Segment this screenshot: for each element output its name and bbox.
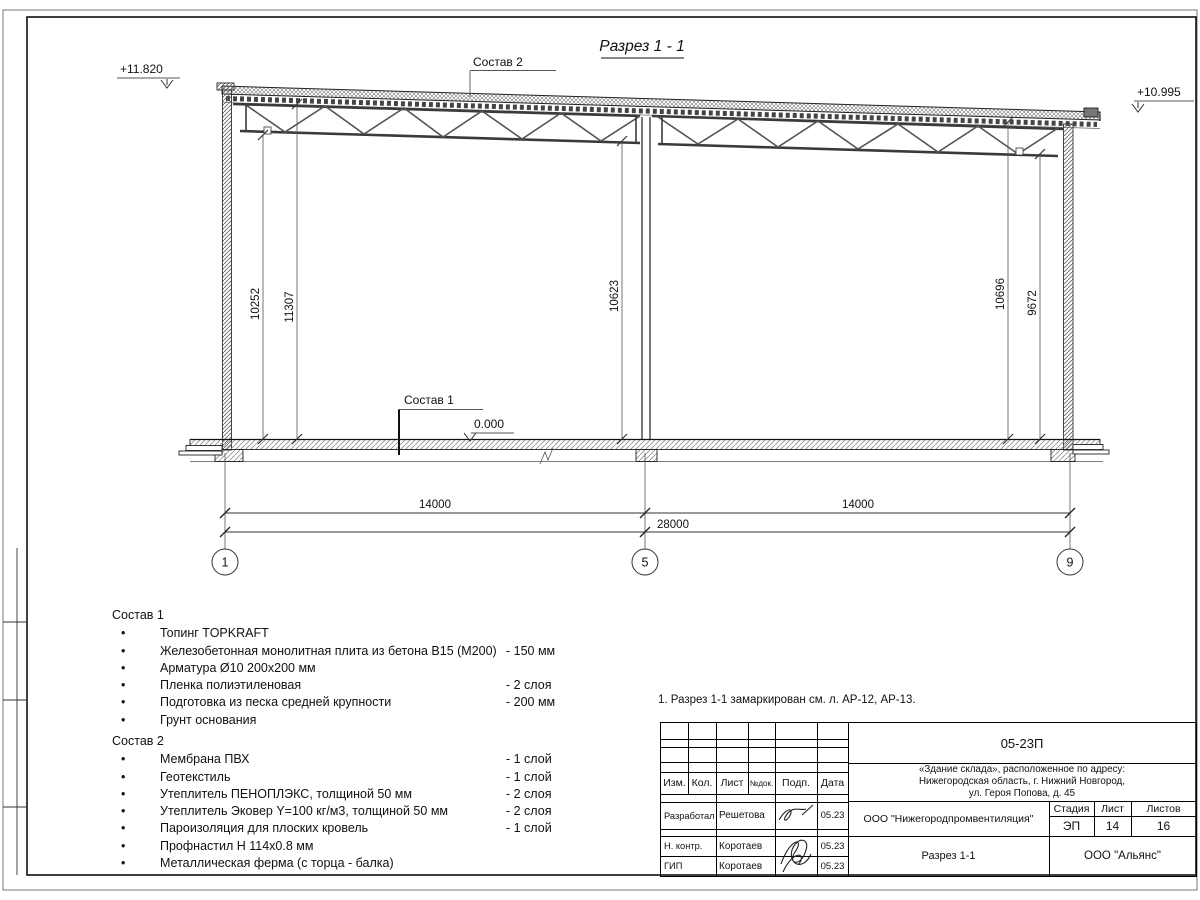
dim-9672: 9672 [1027,290,1039,316]
company-name: ООО "Альянс" [1049,836,1196,876]
svg-text:Состав 1: Состав 1 [404,393,454,407]
callout-roof: Состав 2 [470,55,556,97]
col-header-podp: Подп. [775,772,817,794]
material-row: •Грунт основания [112,712,570,729]
bullet-icon: • [121,694,131,711]
sostav2-heading: Состав 2 [112,733,570,750]
design-org: ООО "Нижегородпромвентиляция" [848,801,1049,836]
date-row2: 05.23 [817,836,848,856]
material-row: •Пароизоляция для плоских кровель- 1 сло… [112,820,570,837]
truss-right [652,116,1063,156]
sheet-value: 14 [1094,816,1131,836]
object-line3: ул. Героя Попова, д. 45 [919,788,1125,800]
dim-11307: 11307 [284,291,296,322]
column-center [642,117,650,439]
col-header-list: Лист [716,772,748,794]
role-nkontr: Н. контр. [661,836,716,856]
ramp-left [186,446,222,451]
sheet-label: Лист [1094,801,1131,816]
bullet-icon: • [121,751,131,768]
frame-side-boxes [3,548,27,875]
wall-left [217,83,234,450]
axis-9-label: 9 [1067,556,1074,570]
dim-span1: 14000 [419,499,451,511]
bullet-icon: • [121,786,131,803]
roof-edge-cap [1084,108,1098,117]
svg-text:+10.995: +10.995 [1137,85,1181,99]
dim-span2: 14000 [842,499,874,511]
elevation-mark-floor: 0.000 [464,417,514,441]
sostav2-block: Состав 2 •Мембрана ПВХ- 1 слой •Геотекст… [112,733,570,872]
bullet-icon: • [121,803,131,820]
col-header-izm: Изм. [661,772,688,794]
height-dimensions [258,99,1045,444]
role-razrabotal: Разработал [661,802,716,829]
drawing-title: Разрез 1 - 1 [599,38,684,55]
svg-text:+11.820: +11.820 [120,62,163,76]
material-row: •Арматура Ø10 200х200 мм [112,660,570,677]
dim-10252: 10252 [250,288,262,320]
material-row: •Утеплитель ПЕНОПЛЭКС, толщиной 50 мм- 2… [112,786,570,803]
sostav1-block: Состав 1 •Топинг TOPKRAFT •Железобетонна… [112,607,570,729]
material-row: •Железобетонная монолитная плита из бето… [112,643,570,660]
material-row: •Утеплитель Эковер Y=100 кг/м3, толщиной… [112,803,570,820]
bullet-icon: • [121,660,131,677]
bullet-icon: • [121,712,131,729]
ramp-right [1073,445,1103,450]
material-row: •Геотекстиль- 1 слой [112,769,570,786]
wall-right [1064,124,1074,450]
drawing-name: Разрез 1-1 [848,836,1049,876]
col-header-kol: Кол. [688,772,716,794]
object-name: «Здание склада», расположенное по адресу… [848,763,1196,801]
material-row: •Профнастил Н 114х0.8 мм [112,838,570,855]
axis-5-label: 5 [642,556,649,570]
object-line1: «Здание склада», расположенное по адресу… [919,764,1125,776]
col-header-dok: №док. [748,772,775,794]
name-korotaev-1: Коротаев [716,836,775,856]
dim-10696: 10696 [995,278,1007,310]
role-gip: ГИП [661,856,716,876]
date-row1: 05.23 [817,802,848,829]
material-row: •Топинг TOPKRAFT [112,625,570,642]
dim-10623: 10623 [609,280,621,312]
svg-text:0.000: 0.000 [474,417,504,431]
drawing-sheet: Разрез 1 - 1 [0,0,1200,900]
object-line2: Нижегородская область, г. Нижний Новгоро… [919,776,1125,788]
signatures [775,802,817,876]
axis-1-label: 1 [222,556,229,570]
name-reshetova: Решетова [716,802,775,829]
signature-korotaev [781,840,811,872]
bullet-icon: • [121,625,131,642]
name-korotaev-2: Коротаев [716,856,775,876]
elevation-mark-left: +11.820 [117,62,180,88]
material-row: •Пленка полиэтиленовая- 2 слоя [112,677,570,694]
stage-label: Стадия [1049,801,1094,816]
svg-text:Состав 2: Состав 2 [473,55,523,69]
doc-number: 05-23П [848,723,1196,763]
sheets-value: 16 [1131,816,1196,836]
material-row: •Подготовка из песка средней крупности- … [112,694,570,711]
material-row: •Металлическая ферма (с торца - балка) [112,855,570,872]
drawing-note: 1. Разрез 1-1 замаркирован см. л. АР-12,… [658,694,916,706]
stage-value: ЭП [1049,816,1094,836]
bullet-icon: • [121,820,131,837]
title-block: Изм. Кол. Лист №док. Подп. Дата Разработ… [660,722,1197,877]
dim-total: 28000 [657,519,689,531]
elevation-mark-right: +10.995 [1132,85,1194,112]
material-row: •Мембрана ПВХ- 1 слой [112,751,570,768]
sostav1-heading: Состав 1 [112,607,570,624]
bullet-icon: • [121,855,131,872]
span-dimensions: 14000 14000 28000 [220,453,1075,549]
bullet-icon: • [121,769,131,786]
bullet-icon: • [121,838,131,855]
col-header-data: Дата [817,772,848,794]
sheets-label: Листов [1131,801,1196,816]
bullet-icon: • [121,643,131,660]
date-row3: 05.23 [817,856,848,876]
signature-reshetova [779,805,813,820]
bullet-icon: • [121,677,131,694]
